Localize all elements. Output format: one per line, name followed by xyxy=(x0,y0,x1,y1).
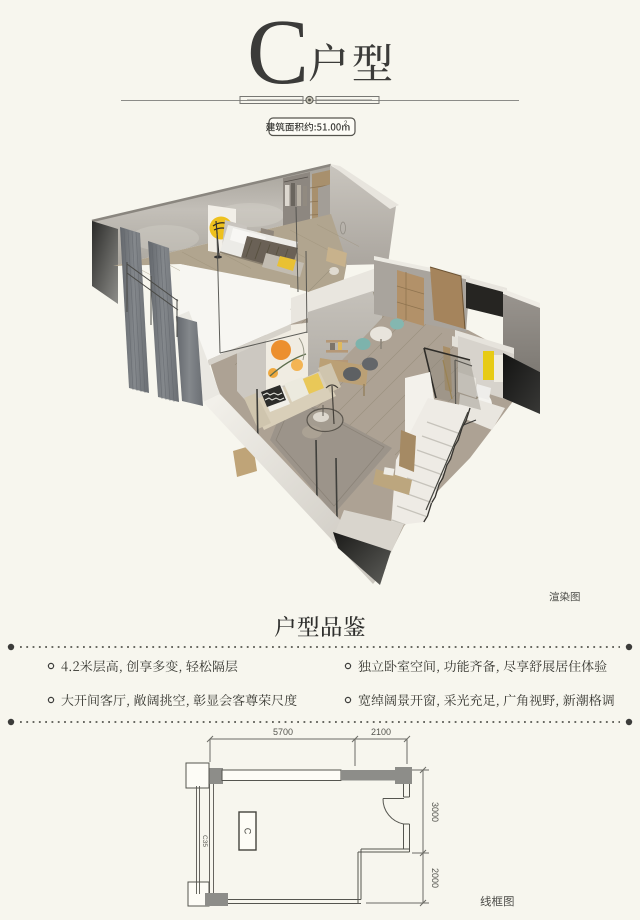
svg-text:2100: 2100 xyxy=(371,727,391,737)
svg-text:3000: 3000 xyxy=(430,802,440,822)
svg-text:C35: C35 xyxy=(201,835,208,847)
svg-text:2000: 2000 xyxy=(430,868,440,888)
svg-text:C: C xyxy=(243,828,253,835)
svg-text:C: C xyxy=(247,1,309,104)
svg-text:5700: 5700 xyxy=(273,727,293,737)
